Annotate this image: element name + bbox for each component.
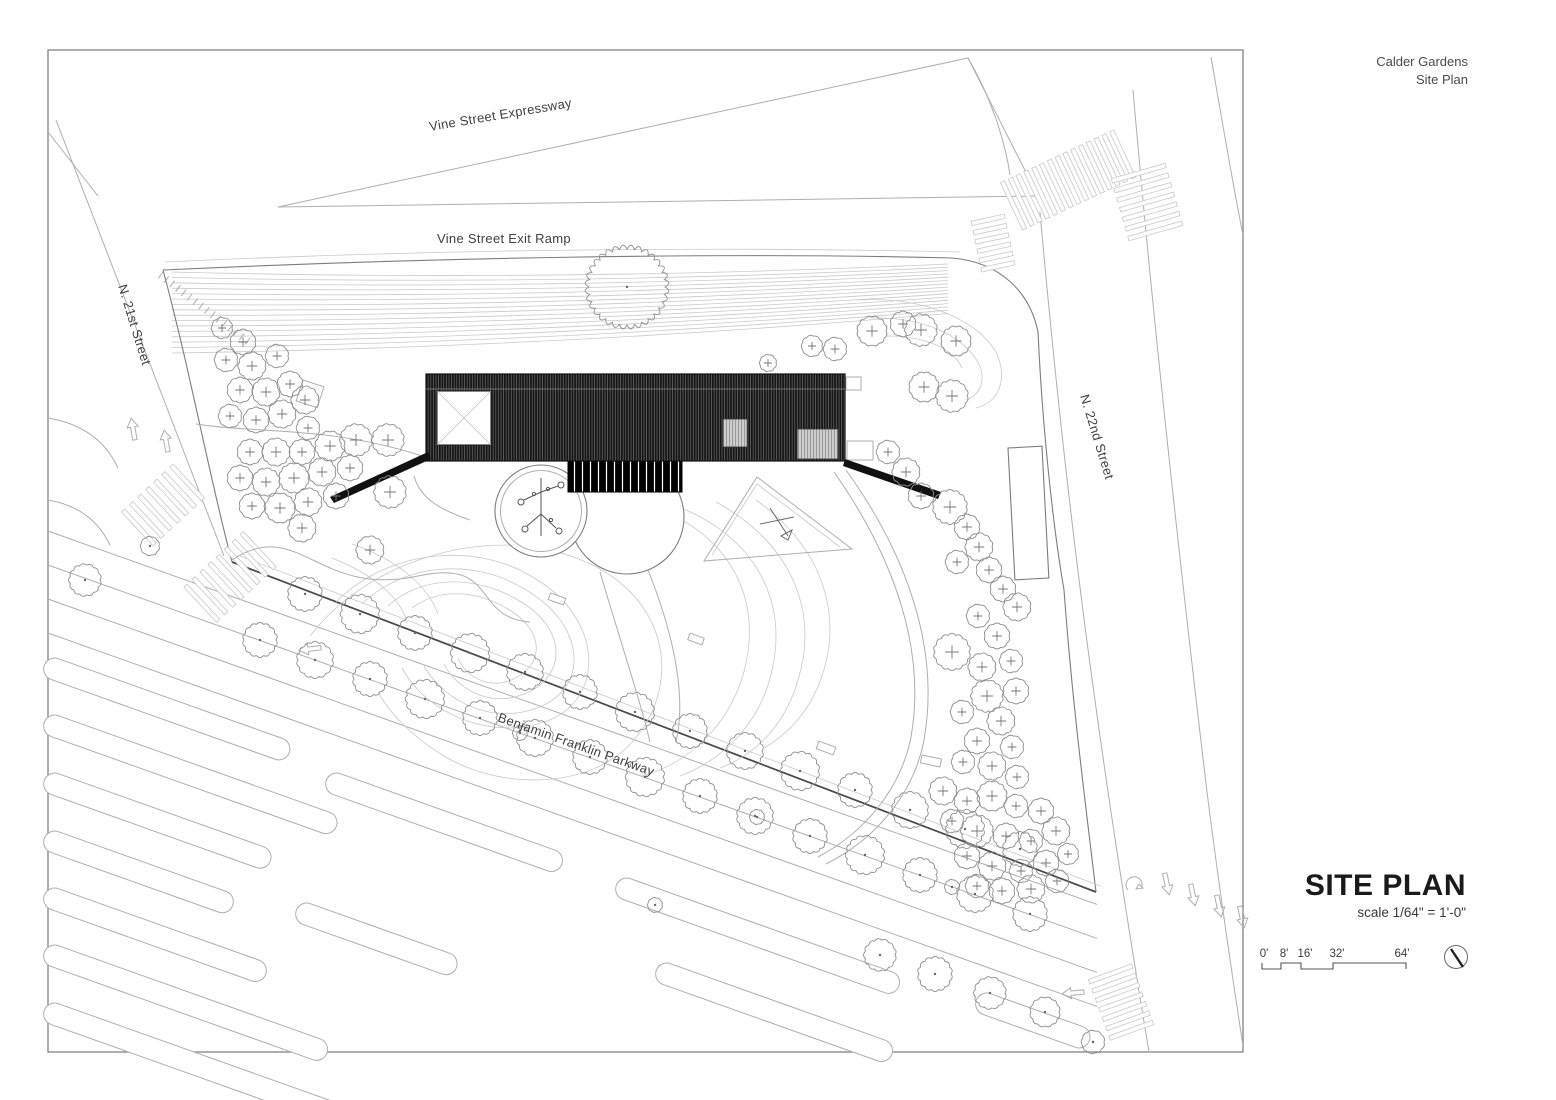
drawing-scale: scale 1/64" = 1'-0" [1357,905,1466,920]
north-arrow-icon [1445,946,1468,969]
scale-tick-64: 64' [1395,948,1410,960]
scale-bar: 0' 8' 16' 32' 64' [1260,948,1410,969]
stair-east-upper [846,377,861,390]
scale-tick-8: 8' [1280,948,1289,960]
courtyard-skylight [437,391,491,445]
roof-opening-2 [797,429,838,459]
title-block: SITE PLAN scale 1/64" = 1'-0" 0' 8' 16' … [1260,869,1468,969]
site-plan-drawing: Calder Gardens Site Plan [0,0,1556,1100]
sheet-title: Site Plan [1416,72,1468,87]
scale-tick-16: 16' [1298,948,1313,960]
scale-tick-32: 32' [1330,948,1345,960]
stair-east-lower [847,441,873,460]
project-title: Calder Gardens [1376,54,1468,69]
drawing-title: SITE PLAN [1305,869,1466,902]
sheet: Calder Gardens Site Plan [0,0,1556,1100]
entry-canopy [568,461,682,492]
label-vine-exit-ramp: Vine Street Exit Ramp [437,231,571,246]
scale-tick-0: 0' [1260,948,1269,960]
roof-opening-1 [723,419,747,447]
east-terrace [1008,446,1049,580]
